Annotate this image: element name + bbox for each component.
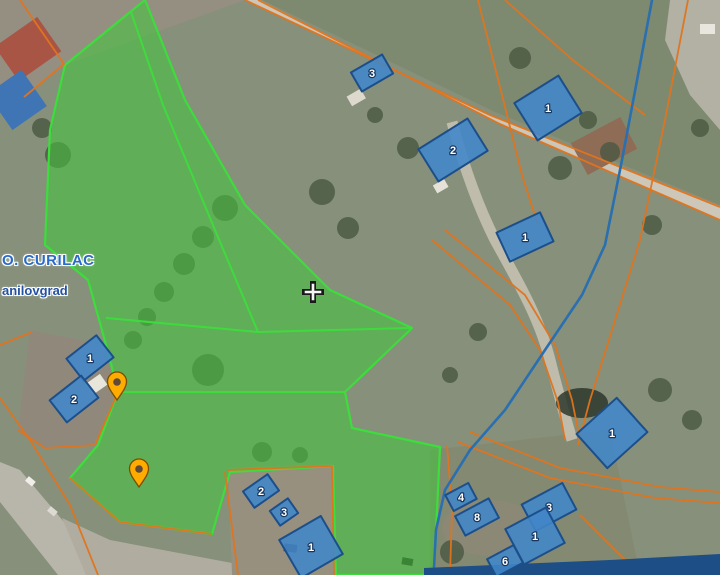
building-number: 2: [71, 394, 77, 406]
building-number: 1: [308, 542, 314, 554]
building-number: 1: [522, 232, 528, 244]
building-number: 2: [258, 486, 264, 498]
building-number: 1: [87, 353, 93, 365]
building-number: 4: [458, 492, 465, 504]
building-number: 3: [369, 68, 375, 80]
place-label-cadastral-zone: O. CURILAC: [2, 252, 95, 269]
building-number: 2: [450, 145, 456, 157]
building-number: 1: [609, 428, 615, 440]
building-number: 3: [281, 507, 287, 519]
building-number: 1: [545, 103, 551, 115]
building-number: 8: [474, 512, 480, 524]
place-label-municipality: anilovgrad: [2, 283, 68, 298]
building-number: 1: [532, 531, 538, 543]
aerial-map[interactable]: 3 2 1 1 1 1 2 2: [0, 0, 720, 575]
map-viewport[interactable]: 3 2 1 1 1 1 2 2: [0, 0, 720, 575]
building-number: 6: [502, 556, 508, 568]
